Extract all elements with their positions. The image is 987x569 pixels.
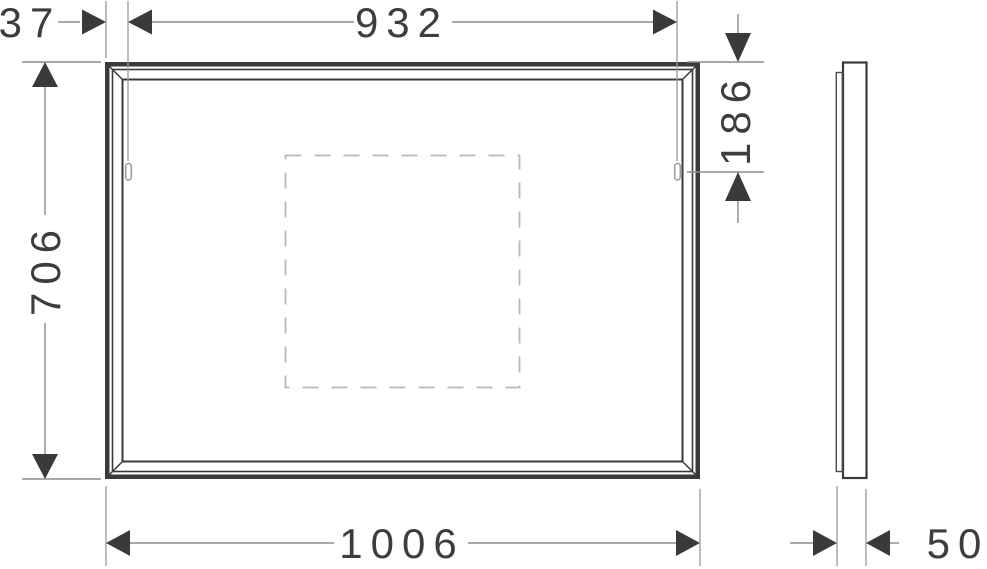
- dim-label-width: 1006: [339, 520, 464, 567]
- dim-label-depth: 50: [927, 520, 987, 567]
- right-hanger-bracket: [675, 164, 681, 181]
- front-view: [106, 63, 699, 478]
- side-profile-glass: [836, 73, 842, 472]
- arrowhead: [653, 10, 677, 35]
- mirror-inner-frame: [123, 80, 683, 462]
- left-hanger-bracket: [126, 164, 132, 181]
- mirror-outer-frame: [107, 64, 698, 477]
- technical-drawing-canvas: 37 932 706 1006: [0, 0, 987, 569]
- arrowhead: [813, 530, 837, 556]
- dimension-depth: 50: [790, 486, 987, 567]
- dimension-top-offset: 37: [0, 0, 106, 58]
- arrowhead: [32, 454, 58, 479]
- arrowhead: [866, 530, 890, 556]
- side-profile-body: [843, 63, 867, 479]
- arrowhead: [106, 530, 130, 556]
- dimension-height: 706: [22, 62, 101, 479]
- dimension-width: 1006: [106, 486, 700, 567]
- arrowhead: [676, 530, 700, 556]
- arrowhead: [82, 10, 106, 35]
- mirror-frame-step: [113, 70, 693, 472]
- arrowhead: [725, 172, 751, 201]
- mounting-zone-dashed-outline: [286, 156, 520, 388]
- arrowhead: [128, 10, 152, 35]
- dim-label-hanger-from-top: 186: [712, 72, 759, 166]
- mirror-dimension-drawing: 37 932 706 1006: [0, 0, 987, 569]
- dim-label-height: 706: [22, 222, 69, 316]
- dim-label-hanger-spacing: 932: [355, 0, 449, 46]
- arrowhead: [32, 62, 58, 87]
- side-view: [836, 63, 866, 479]
- dim-label-top-offset: 37: [0, 0, 61, 46]
- arrowhead: [725, 33, 751, 62]
